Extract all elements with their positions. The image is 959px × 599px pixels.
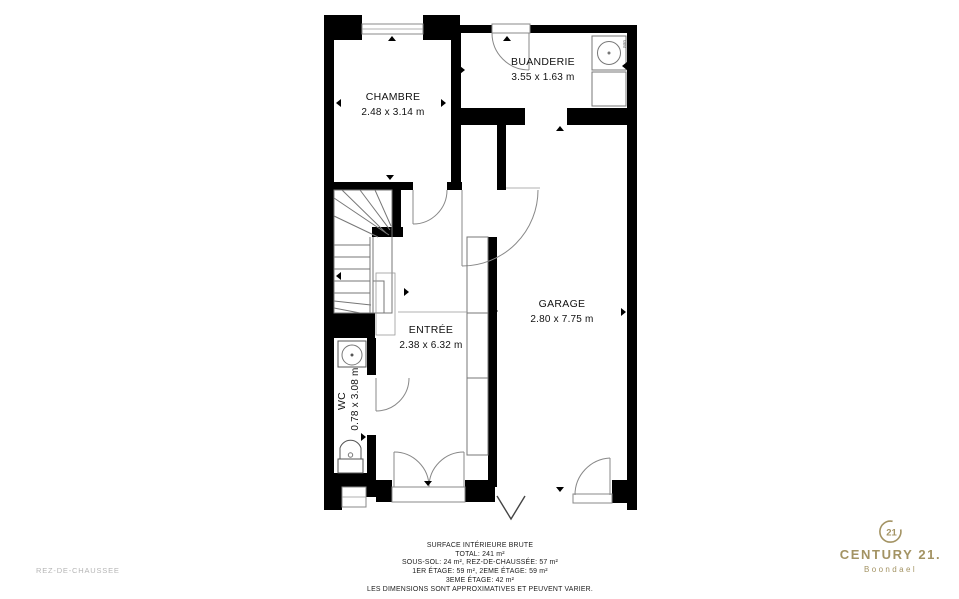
closet-cell <box>467 313 488 378</box>
door-swing-arc <box>575 458 610 495</box>
surface-disclaimer: LES DIMENSIONS SONT APPROXIMATIVES ET PE… <box>230 586 730 595</box>
wall-segment <box>612 480 637 503</box>
measure-arrow <box>404 288 409 296</box>
measure-arrow <box>388 36 396 41</box>
door-threshold <box>392 487 465 502</box>
measure-arrow <box>386 175 394 180</box>
surface-line-3: 3EME ÉTAGE: 42 m² <box>230 577 730 586</box>
measure-arrow <box>503 36 511 41</box>
measure-arrow <box>336 99 341 107</box>
wall-segment <box>460 25 492 33</box>
wall-segment <box>372 227 403 237</box>
measure-arrow <box>424 481 432 486</box>
wall-segment <box>451 33 461 183</box>
washing-machine-label: WM <box>622 40 627 48</box>
door-swing-arc <box>462 190 538 266</box>
room-label-entree: ENTRÉE <box>409 323 453 336</box>
door-swing-arc <box>394 452 429 487</box>
walls <box>324 15 637 510</box>
agency-name: Boondael <box>833 565 948 574</box>
wall-segment <box>367 338 376 375</box>
entrance-arrow <box>497 496 525 519</box>
surface-summary: SURFACE INTÉRIEURE BRUTE TOTAL: 241 m² S… <box>230 542 730 594</box>
stair-newel <box>373 281 384 313</box>
century21-logo: 21 CENTURY 21. Boondael <box>833 518 948 574</box>
measure-arrow <box>556 487 564 492</box>
dryer-icon <box>592 72 626 106</box>
toilet-icon <box>338 440 363 473</box>
door-threshold <box>573 494 612 503</box>
room-dims-entree: 2.38 x 6.32 m <box>399 340 462 351</box>
wall-segment <box>567 108 637 125</box>
wall-segment <box>324 182 413 190</box>
wall-segment <box>324 15 362 40</box>
measure-arrow <box>622 62 627 70</box>
closet-cell <box>467 237 488 313</box>
room-dims-buanderie: 3.55 x 1.63 m <box>511 72 574 83</box>
surface-line-2: 1ER ÉTAGE: 59 m², 2EME ÉTAGE: 59 m² <box>230 568 730 577</box>
measure-arrow <box>336 272 341 280</box>
door-swing-arc <box>429 452 464 487</box>
measure-arrow <box>441 99 446 107</box>
measure-arrow <box>621 308 626 316</box>
century21-seal-icon: 21 <box>877 518 905 546</box>
wall-segment <box>447 182 462 190</box>
surface-line-1: SOUS-SOL: 24 m², REZ-DE-CHAUSSÉE: 57 m² <box>230 559 730 568</box>
measure-arrows <box>327 36 627 492</box>
wall-segment <box>376 480 392 502</box>
door-swing-arc <box>413 190 447 224</box>
wall-segment <box>497 122 506 190</box>
floor-plan-page: WM <box>0 0 959 599</box>
measure-arrow <box>556 126 564 131</box>
wall-segment <box>488 237 497 487</box>
surface-title: SURFACE INTÉRIEURE BRUTE <box>230 542 730 551</box>
floor-label: REZ-DE-CHAUSSEE <box>36 566 120 575</box>
wall-segment <box>324 487 342 510</box>
room-label-chambre: CHAMBRE <box>366 91 421 103</box>
wall-segment <box>461 108 525 125</box>
closet-cell <box>467 378 488 455</box>
brand-name: CENTURY 21. <box>833 547 948 562</box>
washing-machine-icon: WM <box>592 36 627 70</box>
measure-arrow <box>361 433 366 441</box>
room-label-garage: GARAGE <box>539 298 586 310</box>
seal-number: 21 <box>886 528 897 539</box>
room-dims-wc: 0.78 x 3.08 m <box>350 367 361 430</box>
wall-segment <box>392 190 401 232</box>
measure-arrow <box>460 66 465 74</box>
wall-segment <box>530 25 637 33</box>
door-swing-arc <box>376 378 409 411</box>
room-dims-garage: 2.80 x 7.75 m <box>530 314 593 325</box>
floor-plan: WM <box>0 0 959 599</box>
room-dims-chambre: 2.48 x 3.14 m <box>361 107 424 118</box>
sink-icon <box>338 341 366 367</box>
room-label-buanderie: BUANDERIE <box>511 56 575 68</box>
room-label-wc: WC <box>336 392 348 410</box>
wall-segment <box>627 25 637 510</box>
staircase <box>334 190 395 335</box>
door-threshold <box>492 24 530 33</box>
